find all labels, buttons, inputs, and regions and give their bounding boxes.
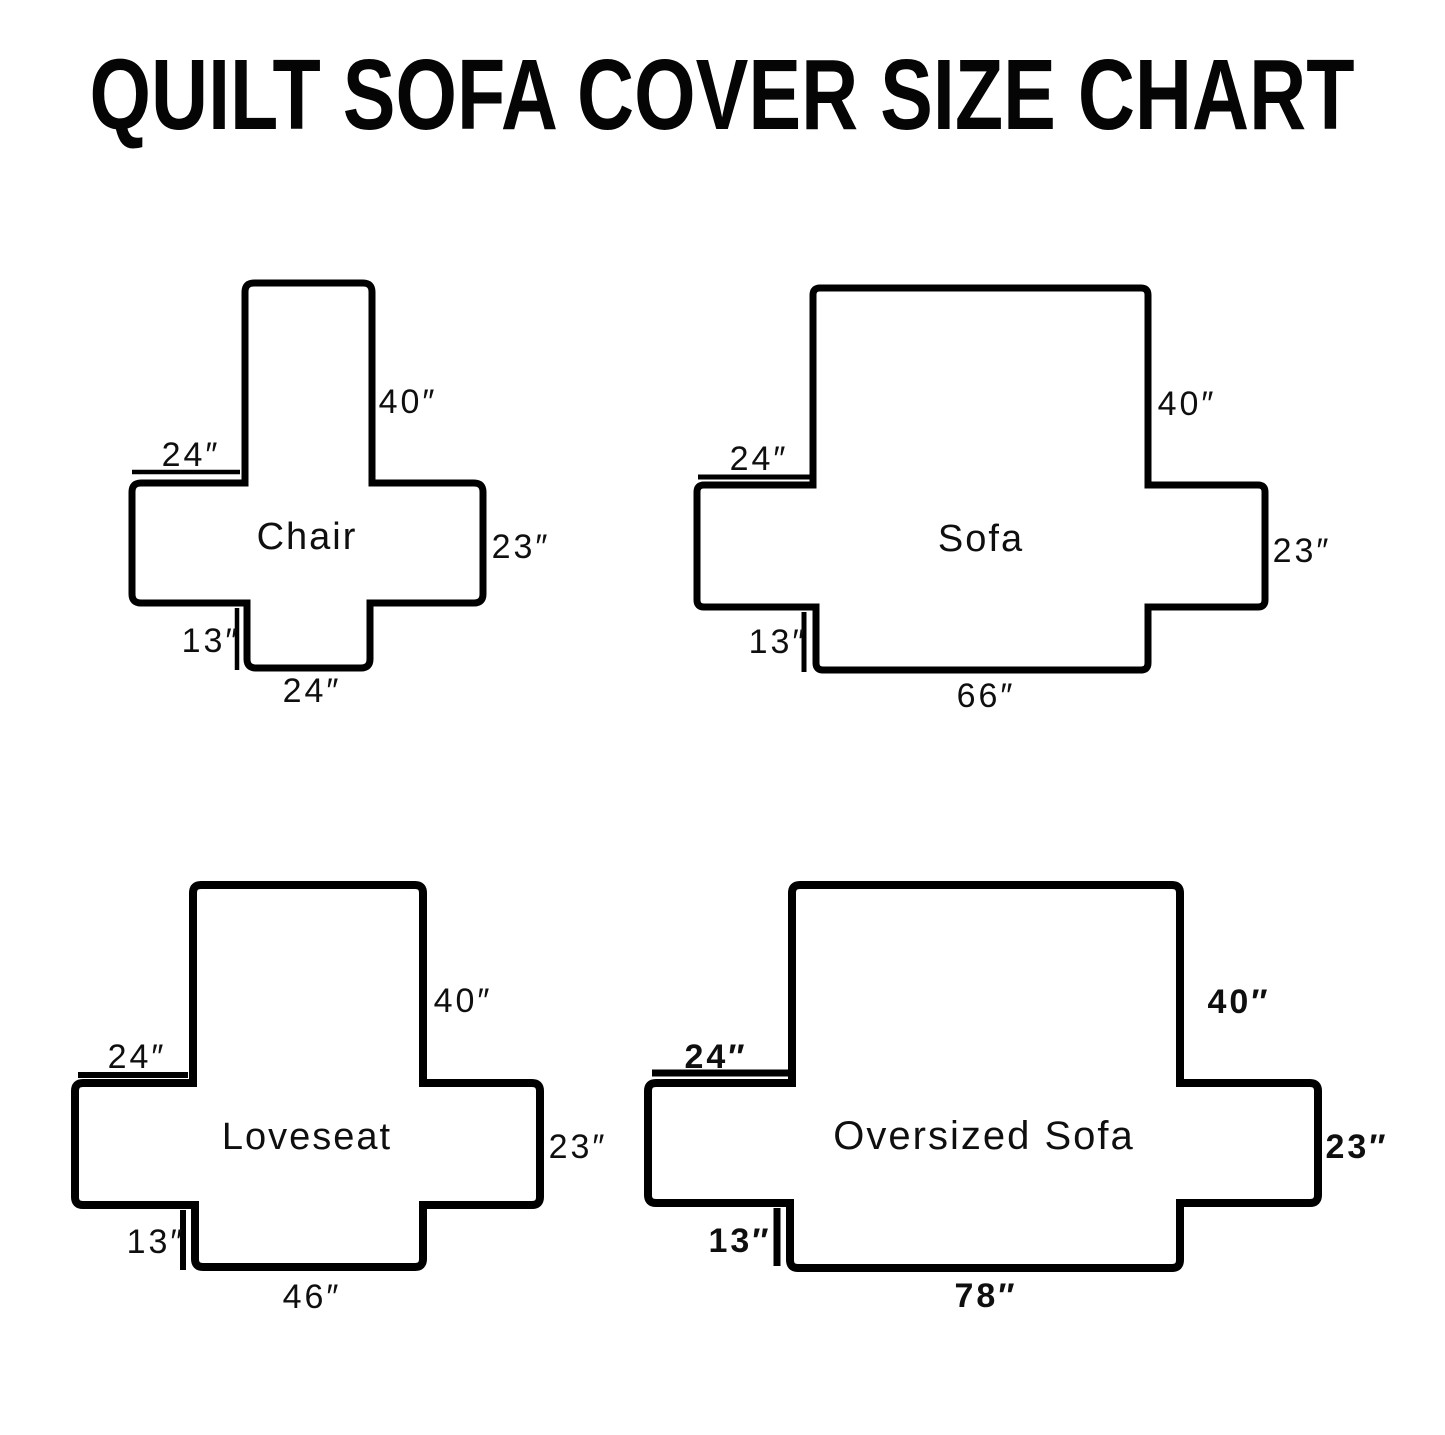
loveseat-front-skirt-label: 13″: [127, 1223, 186, 1261]
loveseat-side-height-label: 23″: [549, 1128, 608, 1166]
quilt-sofa-cover-size-chart: QUILT SOFA COVER SIZE CHART 40″ 24″ Chai…: [0, 0, 1445, 1435]
oversized-sofa-arm-width-label: 24″: [684, 1038, 747, 1076]
loveseat-label: Loveseat: [222, 1116, 392, 1158]
sofa-seat-width-label: 66″: [957, 677, 1016, 715]
chair-back-height-label: 40″: [379, 383, 438, 421]
oversized-sofa-label: Oversized Sofa: [833, 1114, 1134, 1158]
loveseat-seat-width-label: 46″: [283, 1278, 342, 1316]
page-title: QUILT SOFA COVER SIZE CHART: [90, 39, 1355, 151]
sofa-diagram: 40″ 24″ Sofa 23″ 13″ 66″: [697, 288, 1331, 715]
sofa-back-height-label: 40″: [1158, 385, 1217, 423]
sofa-side-height-label: 23″: [1273, 532, 1332, 570]
size-chart-canvas: QUILT SOFA COVER SIZE CHART 40″ 24″ Chai…: [0, 0, 1445, 1435]
loveseat-arm-width-label: 24″: [108, 1038, 167, 1076]
chair-diagram: 40″ 24″ Chair 23″ 13″ 24″: [132, 283, 550, 710]
chair-side-height-label: 23″: [492, 528, 551, 566]
chair-arm-width-label: 24″: [162, 436, 221, 474]
oversized-sofa-back-height-label: 40″: [1207, 983, 1270, 1021]
oversized-sofa-seat-width-label: 78″: [954, 1277, 1017, 1315]
sofa-front-skirt-label: 13″: [749, 623, 808, 661]
chair-seat-width-label: 24″: [283, 672, 342, 710]
chair-front-skirt-label: 13″: [182, 622, 241, 660]
sofa-label: Sofa: [938, 518, 1024, 560]
loveseat-diagram: 40″ 24″ Loveseat 23″ 13″ 46″: [75, 885, 607, 1316]
oversized-sofa-side-height-label: 23″: [1325, 1128, 1388, 1166]
sofa-arm-width-label: 24″: [730, 440, 789, 478]
loveseat-back-height-label: 40″: [434, 982, 493, 1020]
chair-label: Chair: [257, 516, 358, 558]
oversized-sofa-front-skirt-label: 13″: [708, 1222, 771, 1260]
oversized-sofa-diagram: 40″ 24″ Oversized Sofa 23″ 13″ 78″: [648, 885, 1389, 1315]
chair-outline: [132, 283, 483, 668]
